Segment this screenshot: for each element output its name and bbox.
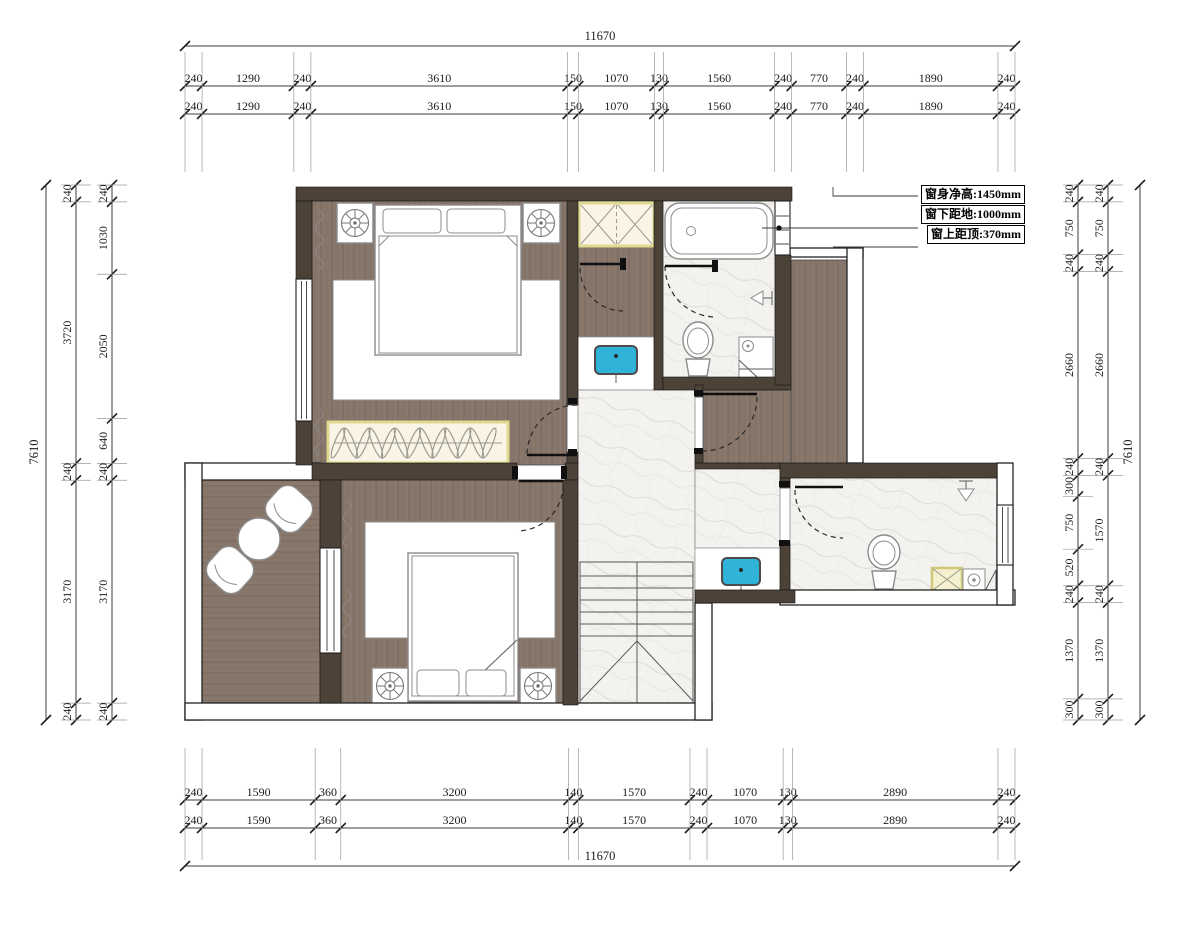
svg-text:240: 240 [846,99,864,113]
closet-room-floor [578,247,654,337]
annotation-row: 窗身净高:1450mm [921,185,1025,204]
svg-text:1570: 1570 [622,785,646,799]
svg-text:7610: 7610 [27,440,41,465]
pillow-icon [447,209,505,233]
svg-text:240: 240 [846,71,864,85]
svg-text:240: 240 [1092,254,1106,272]
svg-text:3610: 3610 [427,71,451,85]
svg-text:640: 640 [96,432,110,450]
svg-text:11670: 11670 [585,849,616,863]
svg-text:750: 750 [1062,514,1076,532]
svg-text:240: 240 [997,785,1015,799]
svg-text:240: 240 [96,703,110,721]
annotation-row: 窗下距地:1000mm [921,205,1025,224]
svg-text:2890: 2890 [883,785,907,799]
annotation-label: 窗上距顶: [931,227,983,241]
window-icon [320,548,341,653]
hallway-arm-floor [695,468,780,548]
svg-text:240: 240 [185,99,203,113]
nightstand-lamp-icon [377,673,404,700]
annotation-value: 1000mm [977,207,1021,221]
svg-text:240: 240 [997,99,1015,113]
storage-x-cabinet-icon [932,568,962,591]
svg-text:240: 240 [1062,184,1076,202]
svg-text:750: 750 [1062,219,1076,237]
bed-icon [375,205,521,355]
storage-x-cabinet-icon [579,203,654,246]
annotation-value: 1450mm [977,187,1021,201]
svg-text:240: 240 [690,813,708,827]
svg-text:1560: 1560 [707,71,731,85]
svg-text:1370: 1370 [1092,639,1106,663]
pillow-icon [466,670,506,696]
svg-text:2890: 2890 [883,813,907,827]
svg-text:240: 240 [185,813,203,827]
toilet-icon [683,322,713,376]
svg-text:300: 300 [1092,700,1106,718]
round-table-icon [238,518,280,560]
annotation-value: 370mm [983,227,1021,241]
svg-text:1370: 1370 [1062,639,1076,663]
svg-text:2660: 2660 [1092,353,1106,377]
svg-text:240: 240 [293,99,311,113]
svg-text:3170: 3170 [60,580,74,604]
svg-text:140: 140 [564,813,582,827]
svg-text:3200: 3200 [443,785,467,799]
pillow-icon [383,209,441,233]
svg-text:240: 240 [997,813,1015,827]
svg-text:1290: 1290 [236,71,260,85]
svg-text:7610: 7610 [1121,440,1135,465]
svg-text:1560: 1560 [707,99,731,113]
svg-text:240: 240 [60,463,74,481]
svg-text:150: 150 [564,99,582,113]
floor-plan-page: 1167024012902403610150107013015602407702… [0,0,1200,925]
svg-text:240: 240 [690,785,708,799]
annotation-label: 窗下距地: [925,207,977,221]
svg-text:770: 770 [810,99,828,113]
svg-text:1570: 1570 [1092,519,1106,543]
wardrobe-hangers-icon [328,422,508,463]
dimension-bottom: 2401590360320014015702401070130289024024… [180,748,1020,871]
bottom-outer-wall [185,703,712,720]
svg-text:240: 240 [185,785,203,799]
washing-machine-icon [739,337,773,378]
svg-text:240: 240 [60,184,74,202]
svg-text:240: 240 [96,184,110,202]
svg-text:240: 240 [1062,458,1076,476]
nightstand-lamp-icon [525,673,552,700]
floor-plan-canvas: 1167024012902403610150107013015602407702… [0,0,1200,925]
svg-text:150: 150 [564,71,582,85]
svg-text:770: 770 [810,71,828,85]
top-right-outer-wall [847,248,863,463]
svg-text:2660: 2660 [1062,353,1076,377]
dimension-top: 1167024012902403610150107013015602407702… [180,29,1020,172]
svg-text:240: 240 [293,71,311,85]
svg-text:240: 240 [1062,254,1076,272]
balcony-top-wall [185,463,320,480]
svg-text:300: 300 [1062,477,1076,495]
svg-text:1890: 1890 [919,71,943,85]
nightstand-lamp-icon [342,210,369,237]
svg-text:240: 240 [96,463,110,481]
svg-text:3720: 3720 [60,321,74,345]
svg-text:11670: 11670 [585,29,616,43]
svg-text:1590: 1590 [247,785,271,799]
svg-text:300: 300 [1062,700,1076,718]
hall-right-outer-wall [695,603,712,720]
svg-text:520: 520 [1062,558,1076,576]
window-annotation: 窗身净高:1450mm 窗下距地:1000mm 窗上距顶:370mm [921,185,1025,244]
svg-text:240: 240 [185,71,203,85]
bathroom-2-bottom-wall [780,590,1015,605]
nightstand-lamp-icon [528,210,555,237]
svg-text:240: 240 [1062,585,1076,603]
window-icon [296,279,312,421]
svg-text:1290: 1290 [236,99,260,113]
bed-icon [408,553,518,701]
svg-text:240: 240 [1092,184,1106,202]
svg-text:130: 130 [779,785,797,799]
svg-text:3170: 3170 [96,580,110,604]
svg-text:1030: 1030 [96,226,110,250]
svg-text:1070: 1070 [733,813,757,827]
svg-text:240: 240 [774,99,792,113]
svg-text:750: 750 [1092,219,1106,237]
bathtub-icon [665,203,773,259]
dimension-right: 2407502402660240300750520240137030024075… [1062,180,1145,725]
svg-text:1070: 1070 [604,71,628,85]
svg-text:3610: 3610 [427,99,451,113]
annotation-row: 窗上距顶:370mm [927,225,1025,244]
svg-text:240: 240 [774,71,792,85]
svg-text:130: 130 [650,71,668,85]
svg-text:240: 240 [1092,458,1106,476]
svg-text:130: 130 [650,99,668,113]
window-icon [997,505,1013,565]
svg-text:1890: 1890 [919,99,943,113]
dressing-room-floor-lower [703,390,791,463]
svg-text:360: 360 [319,785,337,799]
svg-text:140: 140 [564,785,582,799]
svg-text:240: 240 [60,703,74,721]
svg-text:1070: 1070 [733,785,757,799]
balcony-left-wall [185,463,202,720]
svg-text:3200: 3200 [443,813,467,827]
svg-text:360: 360 [319,813,337,827]
pillow-icon [417,670,459,696]
svg-text:2050: 2050 [96,334,110,358]
svg-text:1590: 1590 [247,813,271,827]
svg-text:1570: 1570 [622,813,646,827]
dressing-room-floor-upper [791,260,847,463]
annotation-label: 窗身净高: [925,187,977,201]
svg-text:1070: 1070 [604,99,628,113]
svg-text:240: 240 [997,71,1015,85]
svg-text:240: 240 [1092,585,1106,603]
dimension-left: 7610240372024031702402401030205064024031… [27,180,127,725]
svg-text:130: 130 [779,813,797,827]
